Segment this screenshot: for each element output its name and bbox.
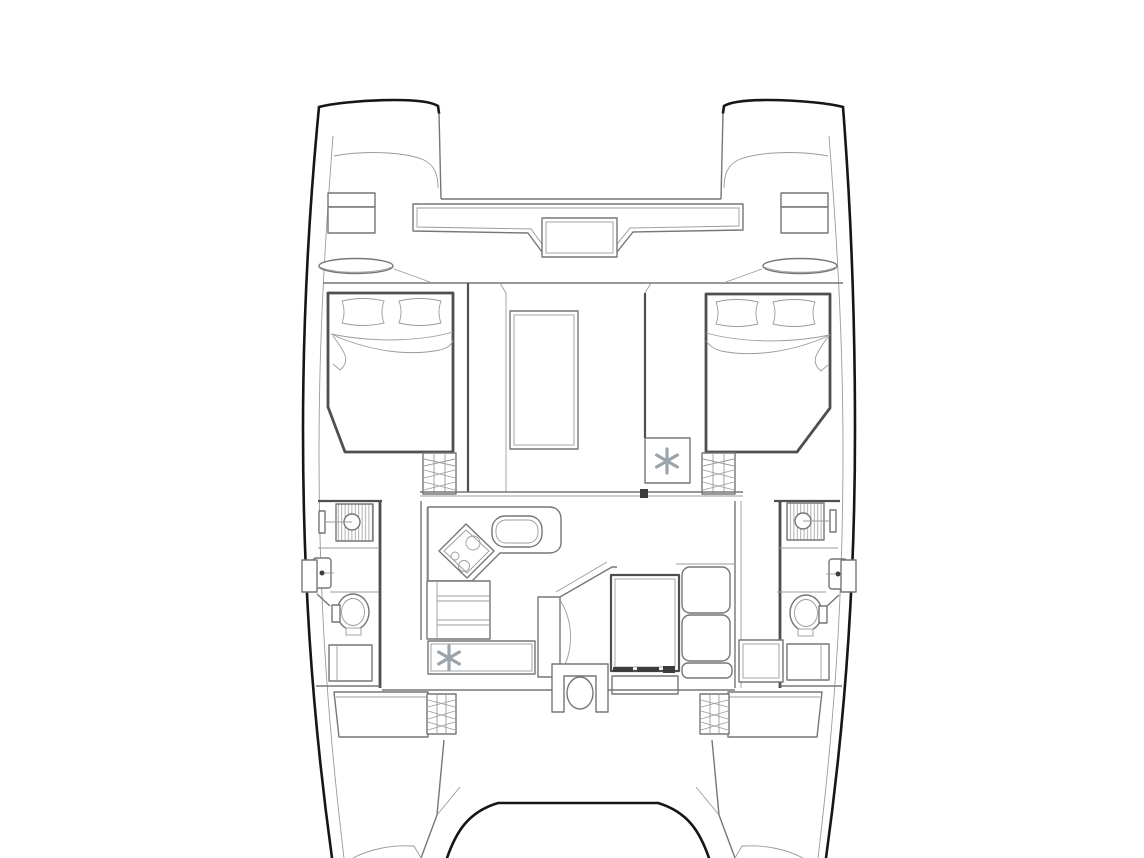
port-forward-companionway-steps xyxy=(423,453,456,494)
starboard-forward-berth-outline xyxy=(706,294,830,452)
toilet-pump xyxy=(819,606,827,623)
starboard-bow-locker-lid xyxy=(781,193,828,207)
sideboard-box xyxy=(428,641,535,674)
starboard-bow-top-edge xyxy=(723,100,843,113)
catamaran-deck-plan: Catamaran deck plan — top view line draw… xyxy=(0,0,1144,858)
port-foredeck-curve xyxy=(334,153,438,188)
starboard-corridor-trim xyxy=(645,283,651,293)
door-track-segment-1 xyxy=(613,667,633,672)
port-bow-top-edge xyxy=(319,100,439,113)
catamaran-deck-plan-page: Catamaran deck plan — top view line draw… xyxy=(0,0,1144,858)
starboard-walkway-brace xyxy=(696,787,719,815)
starboard-toilet xyxy=(790,595,827,636)
port-transom-step xyxy=(353,846,421,858)
saloon-corridor xyxy=(420,283,743,498)
chaise-back-edge xyxy=(560,567,617,597)
port-aft-berth xyxy=(334,692,428,737)
steps-box xyxy=(700,694,729,734)
settee-cushion-lower xyxy=(682,615,730,661)
dinette-table xyxy=(611,575,679,671)
port-bow-locker xyxy=(328,207,375,233)
starboard-hull-port-light xyxy=(841,560,856,592)
starboard-forward-cabin xyxy=(645,294,830,494)
chaise-cushion xyxy=(560,600,571,674)
shower-mixer xyxy=(319,511,325,533)
basin-tap xyxy=(836,572,841,577)
starboard-head-corner-wall xyxy=(826,595,839,607)
toilet-base xyxy=(346,628,361,635)
starboard-aft-berth xyxy=(728,692,822,737)
cabinet-box xyxy=(427,581,490,639)
basin-tap xyxy=(320,571,325,576)
port-walkway-brace xyxy=(437,787,460,815)
port-shower xyxy=(319,504,373,541)
port-hull-sheer-line xyxy=(319,136,344,858)
starboard-aft-steps xyxy=(700,694,729,734)
starboard-transom-step xyxy=(735,846,803,858)
port-head xyxy=(302,501,382,688)
foredeck xyxy=(413,199,743,257)
settee-cushion-bottom xyxy=(682,663,732,678)
port-vanity-locker xyxy=(329,645,372,681)
toilet-base xyxy=(798,629,813,636)
port-toilet xyxy=(332,594,369,635)
starboard-bow-locker xyxy=(781,207,828,233)
port-walkway-edge xyxy=(421,740,444,858)
bulkhead-post xyxy=(640,489,648,498)
port-aft-cabin xyxy=(334,692,456,737)
companionway-seat xyxy=(552,664,608,712)
door-track-segment-2 xyxy=(637,667,659,672)
saloon-skylight xyxy=(510,311,578,449)
port-bow-seat xyxy=(319,259,393,274)
saloon-sideboard xyxy=(428,641,535,674)
port-aft-steps xyxy=(427,694,456,734)
starboard-shower xyxy=(787,503,836,540)
starboard-corridor-cabinet xyxy=(739,640,783,682)
starboard-foredeck-curve xyxy=(724,153,828,188)
steps-box xyxy=(427,694,456,734)
starboard-bow-seat xyxy=(763,259,837,274)
mast-step xyxy=(542,218,617,257)
starboard-bow-brace xyxy=(726,269,762,282)
stern xyxy=(353,740,803,858)
port-head-corner-wall xyxy=(317,594,330,606)
port-forward-berth-outline xyxy=(328,293,453,452)
steps-box xyxy=(702,453,735,494)
starboard-vanity-locker xyxy=(787,644,829,680)
port-forward-cabin xyxy=(328,293,456,494)
settee-cushion-upper xyxy=(682,567,730,613)
galley-cabinet xyxy=(427,581,490,639)
chaise-back-inner xyxy=(556,562,607,592)
shower-mixer xyxy=(830,510,836,532)
chaise-bench xyxy=(538,562,617,677)
table-step xyxy=(612,676,678,694)
door-track-segment-3 xyxy=(663,666,675,673)
starboard-forward-companionway-steps xyxy=(702,453,735,494)
port-bow-brace xyxy=(394,269,430,282)
port-corridor-trim xyxy=(500,283,506,492)
starboard-aft-cabin xyxy=(700,692,822,737)
cockpit-coaming-curve xyxy=(447,803,709,858)
port-bow-inner-edge xyxy=(439,113,441,199)
steps-box xyxy=(423,453,456,494)
galley-sink xyxy=(492,516,542,547)
starboard-bow-inner-edge xyxy=(721,113,723,199)
starboard-head xyxy=(739,501,856,688)
port-hull-port-light xyxy=(302,560,317,592)
seat-cushion xyxy=(567,677,593,709)
starboard-walkway-edge xyxy=(712,740,735,858)
port-bow-locker-lid xyxy=(328,193,375,207)
toilet-pump xyxy=(332,605,340,622)
